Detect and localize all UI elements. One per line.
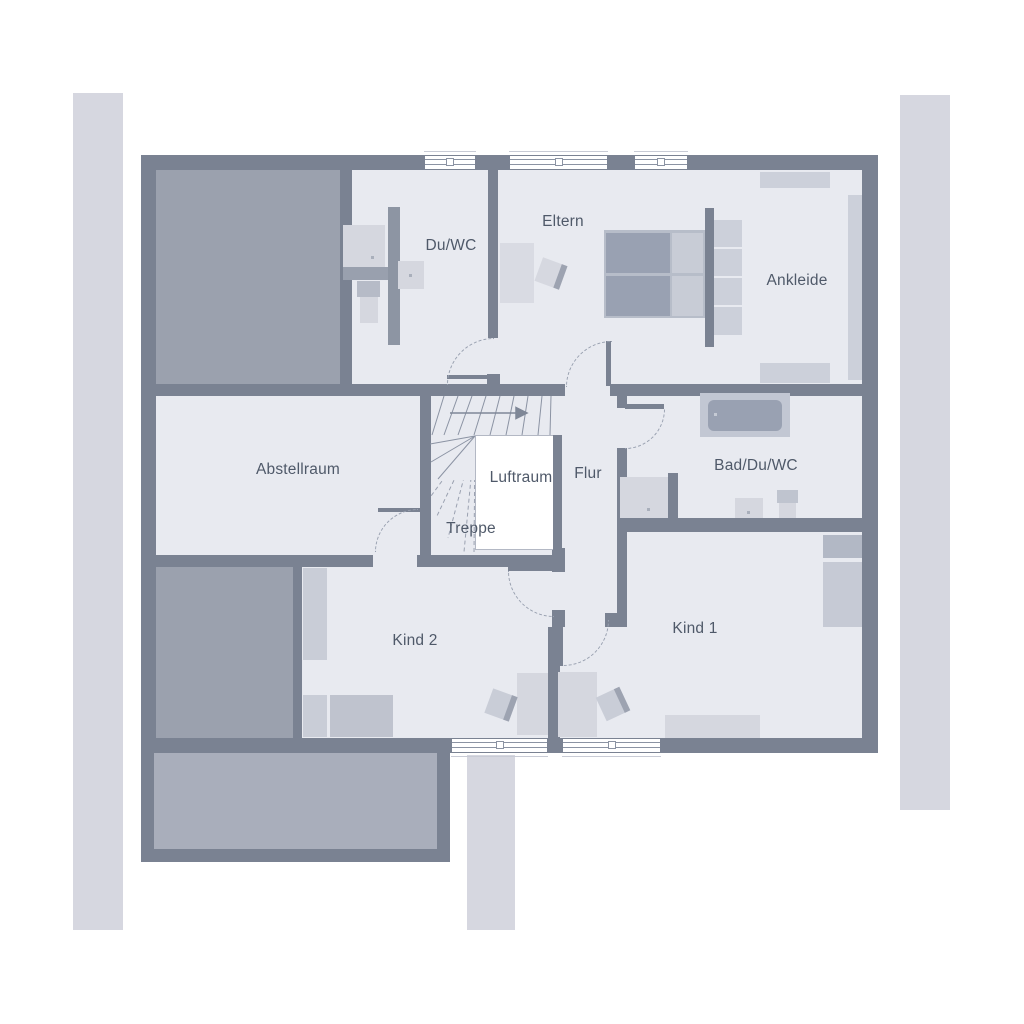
room-label-treppe: Treppe [446, 520, 496, 538]
bed-pillow [672, 233, 703, 273]
wall-duwc-eltern [488, 168, 498, 338]
wall-lower-band-west [156, 555, 373, 567]
exterior-wall-left [141, 155, 156, 753]
window [635, 156, 687, 169]
room-label-bad-du-wc: Bad/Du/WC [714, 457, 798, 475]
bed-mattress [606, 276, 670, 316]
dresser [500, 243, 534, 303]
toilet [360, 297, 378, 323]
room-label-ankleide: Ankleide [766, 272, 827, 290]
dresser [558, 672, 597, 737]
window [563, 739, 660, 752]
bed-mattress [823, 562, 862, 627]
room-label-abstellraum: Abstellraum [256, 461, 340, 479]
closet-shelf [714, 249, 742, 276]
roof-area-mid-left [156, 567, 293, 738]
shower-tray [620, 477, 668, 518]
toilet [777, 490, 798, 503]
wall-bad-south [617, 518, 878, 532]
room-label-luftraum: Luftraum [490, 469, 553, 487]
wardrobe [848, 195, 862, 380]
stair-direction-arrow [450, 408, 527, 419]
room-label-du-wc: Du/WC [426, 237, 477, 255]
wardrobe [303, 568, 327, 660]
balcony-floor [154, 751, 437, 849]
duwc-counter [343, 267, 388, 280]
window [510, 156, 607, 169]
closet-shelf [714, 307, 742, 335]
window [425, 156, 475, 169]
room-label-eltern: Eltern [542, 213, 584, 231]
floorplan-canvas: Du/WC Eltern Ankleide Abstellraum Luftra… [0, 0, 1024, 1024]
shower-tray [343, 225, 385, 268]
closet-shelf [714, 220, 742, 247]
wall-shower-divider [668, 473, 678, 528]
bed-mattress [606, 233, 670, 273]
toilet [357, 281, 380, 297]
washbasin [735, 498, 763, 518]
wardrobe-divider-wall [705, 208, 714, 347]
room-label-kind-2: Kind 2 [392, 632, 437, 650]
left-wall-strip [73, 93, 123, 930]
closet-shelf [714, 278, 742, 305]
toilet [779, 503, 796, 518]
wardrobe [760, 363, 830, 383]
bottom-wall-strip [467, 755, 515, 930]
bathtub-inner [708, 400, 782, 431]
bed-mattress [330, 695, 393, 737]
desk [517, 673, 548, 735]
bed-pillow [303, 695, 327, 737]
room-label-flur: Flur [574, 465, 602, 483]
bed-pillow [823, 535, 862, 558]
wardrobe [760, 172, 830, 188]
bed-pillow [672, 276, 703, 316]
window [452, 739, 547, 752]
desk [665, 715, 760, 738]
right-wall-strip [900, 95, 950, 810]
room-label-kind-1: Kind 1 [672, 620, 717, 638]
roof-area-top-left [156, 170, 340, 384]
wall-kind2-west [293, 567, 302, 738]
wall-bad-west-lower [617, 448, 627, 627]
exterior-wall-right [862, 155, 878, 753]
wall-middle-west [156, 384, 565, 396]
